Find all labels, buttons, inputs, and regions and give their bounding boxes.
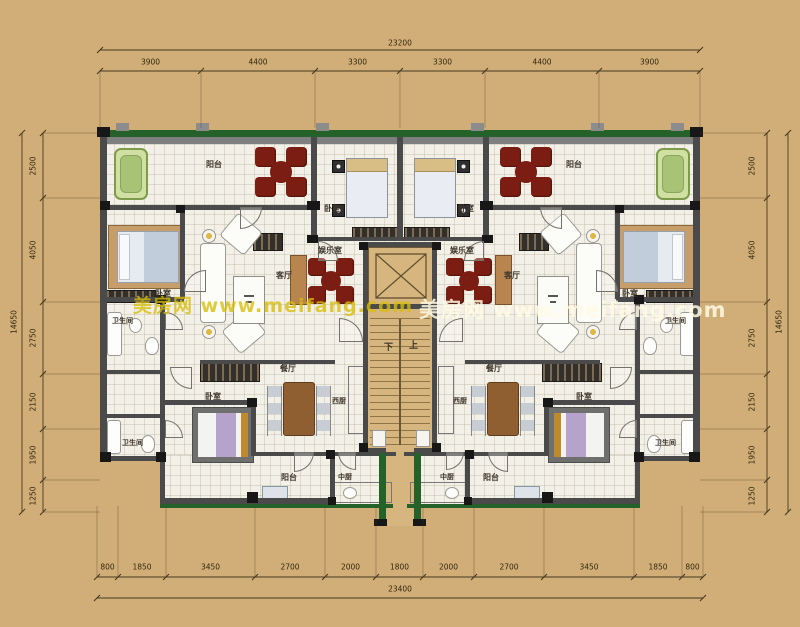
wall bbox=[330, 455, 335, 502]
label-bathroom-right-2: 卫生间 bbox=[655, 440, 676, 448]
wall bbox=[397, 137, 403, 241]
label-west-kitchen-right: 西厨 bbox=[453, 398, 467, 406]
master-bed bbox=[108, 225, 184, 289]
wall bbox=[640, 414, 696, 418]
dim-left-segment-4: 1950 bbox=[29, 445, 37, 464]
wall bbox=[200, 360, 335, 364]
column bbox=[326, 450, 335, 459]
hedge-strip bbox=[414, 453, 421, 526]
watermark-left: 美房网 www.meifang.com bbox=[133, 297, 413, 316]
hedge-strip bbox=[407, 504, 640, 508]
label-balcony-bottom-left: 阳台 bbox=[281, 474, 297, 483]
dim-right-segment-3: 2150 bbox=[748, 392, 756, 411]
nightstand bbox=[332, 160, 345, 173]
wall bbox=[635, 458, 640, 498]
label-bathroom-left-2: 卫生间 bbox=[122, 440, 143, 448]
nightstand bbox=[457, 160, 470, 173]
label-balcony-top-left: 阳台 bbox=[206, 161, 222, 170]
dim-top-segment-1: 4400 bbox=[248, 58, 267, 66]
dim-bottom-segment-4: 2000 bbox=[341, 563, 360, 571]
bathtub bbox=[107, 420, 121, 454]
patio-table-set bbox=[255, 147, 307, 197]
dim-bottom-segment-8: 3450 bbox=[579, 563, 598, 571]
label-balcony-top-right: 阳台 bbox=[566, 161, 582, 170]
column bbox=[464, 497, 472, 505]
label-dining-right: 餐厅 bbox=[486, 365, 502, 374]
wall bbox=[544, 403, 549, 455]
blanket bbox=[624, 232, 658, 282]
wall bbox=[635, 456, 696, 461]
dim-right-segment-1: 4050 bbox=[748, 240, 756, 259]
bed bbox=[414, 158, 456, 218]
dim-top-segment-0: 3900 bbox=[141, 58, 160, 66]
hedge-strip bbox=[379, 453, 386, 526]
dim-left-segment-1: 4050 bbox=[29, 240, 37, 259]
toilet bbox=[141, 435, 155, 453]
label-bedroom-bottom-right: 卧室 bbox=[576, 393, 592, 402]
wall bbox=[693, 131, 700, 460]
wall bbox=[544, 400, 640, 405]
label-dining-left: 餐厅 bbox=[280, 365, 296, 374]
bed bbox=[192, 407, 254, 463]
floor-lamp bbox=[586, 325, 600, 339]
label-stairs-down: 下 bbox=[384, 344, 393, 354]
wall bbox=[640, 370, 696, 374]
dim-top-segment-4: 4400 bbox=[532, 58, 551, 66]
column bbox=[374, 519, 387, 526]
stairs-landing-left bbox=[372, 430, 386, 447]
wall bbox=[104, 205, 316, 210]
dim-right-segment-5: 1250 bbox=[748, 486, 756, 505]
floor-lamp bbox=[202, 229, 216, 243]
column bbox=[176, 205, 185, 213]
table-detail bbox=[548, 295, 558, 297]
dim-bottom-segment-1: 1850 bbox=[132, 563, 151, 571]
dining-table bbox=[283, 382, 315, 436]
watermark-right: 美房网 www.meifang.com bbox=[419, 300, 727, 321]
dim-right-segment-4: 1950 bbox=[748, 445, 756, 464]
hedge-strip bbox=[104, 130, 696, 137]
toilet bbox=[145, 337, 159, 355]
spa-tub-water bbox=[662, 155, 684, 193]
dim-bottom-segment-5: 1800 bbox=[390, 563, 409, 571]
wall bbox=[484, 205, 696, 210]
dim-left-segment-0: 2500 bbox=[29, 156, 37, 175]
wall bbox=[465, 455, 470, 502]
column bbox=[359, 443, 368, 452]
wall bbox=[251, 403, 256, 455]
dim-top-total: 23200 bbox=[388, 39, 412, 47]
blanket bbox=[566, 413, 586, 457]
label-west-kitchen-left: 西厨 bbox=[332, 398, 346, 406]
column bbox=[307, 201, 320, 210]
spa-tub bbox=[114, 148, 148, 200]
hedge-strip bbox=[160, 504, 393, 508]
wardrobe bbox=[200, 363, 260, 382]
label-entertainment-right: 娱乐室 bbox=[450, 247, 474, 256]
label-bedroom-small-right: 卧室 bbox=[458, 205, 474, 214]
dim-bottom-total: 23400 bbox=[388, 585, 412, 593]
wall bbox=[432, 242, 437, 453]
column bbox=[432, 443, 441, 452]
dim-bottom-segment-3: 2700 bbox=[280, 563, 299, 571]
label-bedroom-bottom-left: 卧室 bbox=[205, 393, 221, 402]
dim-bottom-segment-7: 2700 bbox=[499, 563, 518, 571]
dim-right-segment-0: 2500 bbox=[748, 156, 756, 175]
label-bathroom-left-1: 卫生间 bbox=[112, 318, 133, 326]
dim-bottom-segment-9: 1850 bbox=[648, 563, 667, 571]
label-balcony-bottom-right: 阳台 bbox=[483, 474, 499, 483]
pillar-tab bbox=[471, 123, 484, 131]
column bbox=[615, 205, 624, 213]
mattress bbox=[623, 231, 685, 283]
floor-lamp bbox=[586, 229, 600, 243]
dim-bottom-segment-0: 800 bbox=[100, 563, 114, 571]
dim-left-total: 14650 bbox=[10, 310, 18, 334]
column bbox=[97, 127, 110, 137]
toilet bbox=[643, 337, 657, 355]
dim-bottom-segment-10: 800 bbox=[685, 563, 699, 571]
patio-table-set bbox=[500, 147, 552, 197]
stairs-landing-right bbox=[416, 430, 430, 447]
dining-table bbox=[487, 382, 519, 436]
wall bbox=[311, 237, 401, 241]
pillar-tab bbox=[671, 123, 684, 131]
dim-left-segment-5: 1250 bbox=[29, 486, 37, 505]
label-chinese-kitchen-right: 中厨 bbox=[440, 474, 454, 482]
wall bbox=[251, 452, 396, 456]
wardrobe bbox=[542, 363, 602, 382]
dim-bottom-segment-6: 2000 bbox=[439, 563, 458, 571]
pillow bbox=[119, 234, 130, 280]
dining-chairs bbox=[316, 386, 331, 436]
label-living-left: 客厅 bbox=[276, 272, 292, 281]
spa-tub bbox=[656, 148, 690, 200]
bed-runner bbox=[241, 413, 248, 457]
wall bbox=[311, 137, 317, 241]
mattress bbox=[198, 413, 248, 457]
bed-pillows bbox=[415, 159, 455, 172]
column bbox=[307, 235, 318, 243]
bed-runner bbox=[554, 413, 561, 457]
kitchen-sink bbox=[343, 487, 357, 499]
dim-right-total: 14650 bbox=[775, 310, 783, 334]
pillar-tab bbox=[196, 123, 209, 131]
pillar-tab bbox=[591, 123, 604, 131]
wall bbox=[160, 458, 165, 498]
dim-left-segment-3: 2150 bbox=[29, 392, 37, 411]
label-bedroom-small-left: 卧室 bbox=[324, 205, 340, 214]
wall bbox=[363, 242, 368, 453]
pillow bbox=[672, 234, 683, 280]
column bbox=[432, 242, 441, 250]
wall bbox=[100, 131, 107, 460]
column bbox=[690, 127, 703, 137]
column bbox=[247, 398, 257, 407]
pillar-tab bbox=[116, 123, 129, 131]
dining-chairs bbox=[471, 386, 486, 436]
dim-top-segment-2: 3300 bbox=[348, 58, 367, 66]
column bbox=[100, 452, 111, 462]
floor-plan-canvas: 阳台 阳台 卧室 卧室 娱乐室 娱乐室 卧室 卧室 客厅 客厅 卫生间 卫生间 … bbox=[0, 0, 800, 627]
floor-lamp bbox=[202, 325, 216, 339]
kitchen-counter bbox=[438, 366, 454, 434]
dim-top-segment-5: 3900 bbox=[640, 58, 659, 66]
column bbox=[542, 492, 553, 503]
column bbox=[465, 450, 474, 459]
column bbox=[543, 398, 553, 407]
dining-chairs bbox=[267, 386, 282, 436]
column bbox=[247, 492, 258, 503]
spa-tub-water bbox=[120, 155, 142, 193]
stairs-divider bbox=[399, 319, 401, 445]
kitchen-sink bbox=[445, 487, 459, 499]
pillar-tab bbox=[316, 123, 329, 131]
wall bbox=[104, 370, 160, 374]
blanket bbox=[216, 413, 236, 457]
dining-chairs bbox=[520, 386, 535, 436]
column bbox=[328, 497, 336, 505]
dim-bottom-segment-2: 3450 bbox=[201, 563, 220, 571]
column bbox=[156, 452, 166, 462]
bed bbox=[548, 407, 610, 463]
dim-right-segment-2: 2750 bbox=[748, 328, 756, 347]
column bbox=[634, 452, 644, 462]
floor-plan: 阳台 阳台 卧室 卧室 娱乐室 娱乐室 卧室 卧室 客厅 客厅 卫生间 卫生间 … bbox=[0, 0, 800, 627]
column bbox=[100, 201, 110, 210]
label-chinese-kitchen-left: 中厨 bbox=[338, 474, 352, 482]
column bbox=[359, 242, 368, 250]
wall bbox=[363, 242, 437, 247]
mattress bbox=[554, 413, 604, 457]
column bbox=[413, 519, 426, 526]
bed bbox=[346, 158, 388, 218]
wall bbox=[483, 137, 489, 241]
bed-pillows bbox=[347, 159, 387, 172]
label-living-right: 客厅 bbox=[504, 272, 520, 281]
column bbox=[480, 201, 493, 210]
blanket bbox=[144, 232, 178, 282]
dim-left-segment-2: 2750 bbox=[29, 328, 37, 347]
kitchen-counter bbox=[348, 366, 364, 434]
mattress bbox=[117, 231, 179, 283]
column bbox=[690, 201, 700, 210]
label-entertainment-left: 娱乐室 bbox=[318, 247, 342, 256]
wall bbox=[399, 237, 489, 241]
wall bbox=[104, 414, 160, 418]
dim-top-segment-3: 3300 bbox=[433, 58, 452, 66]
column bbox=[689, 452, 700, 462]
label-stairs-up: 上 bbox=[409, 342, 418, 352]
wall bbox=[404, 452, 549, 456]
master-bed bbox=[618, 225, 694, 289]
